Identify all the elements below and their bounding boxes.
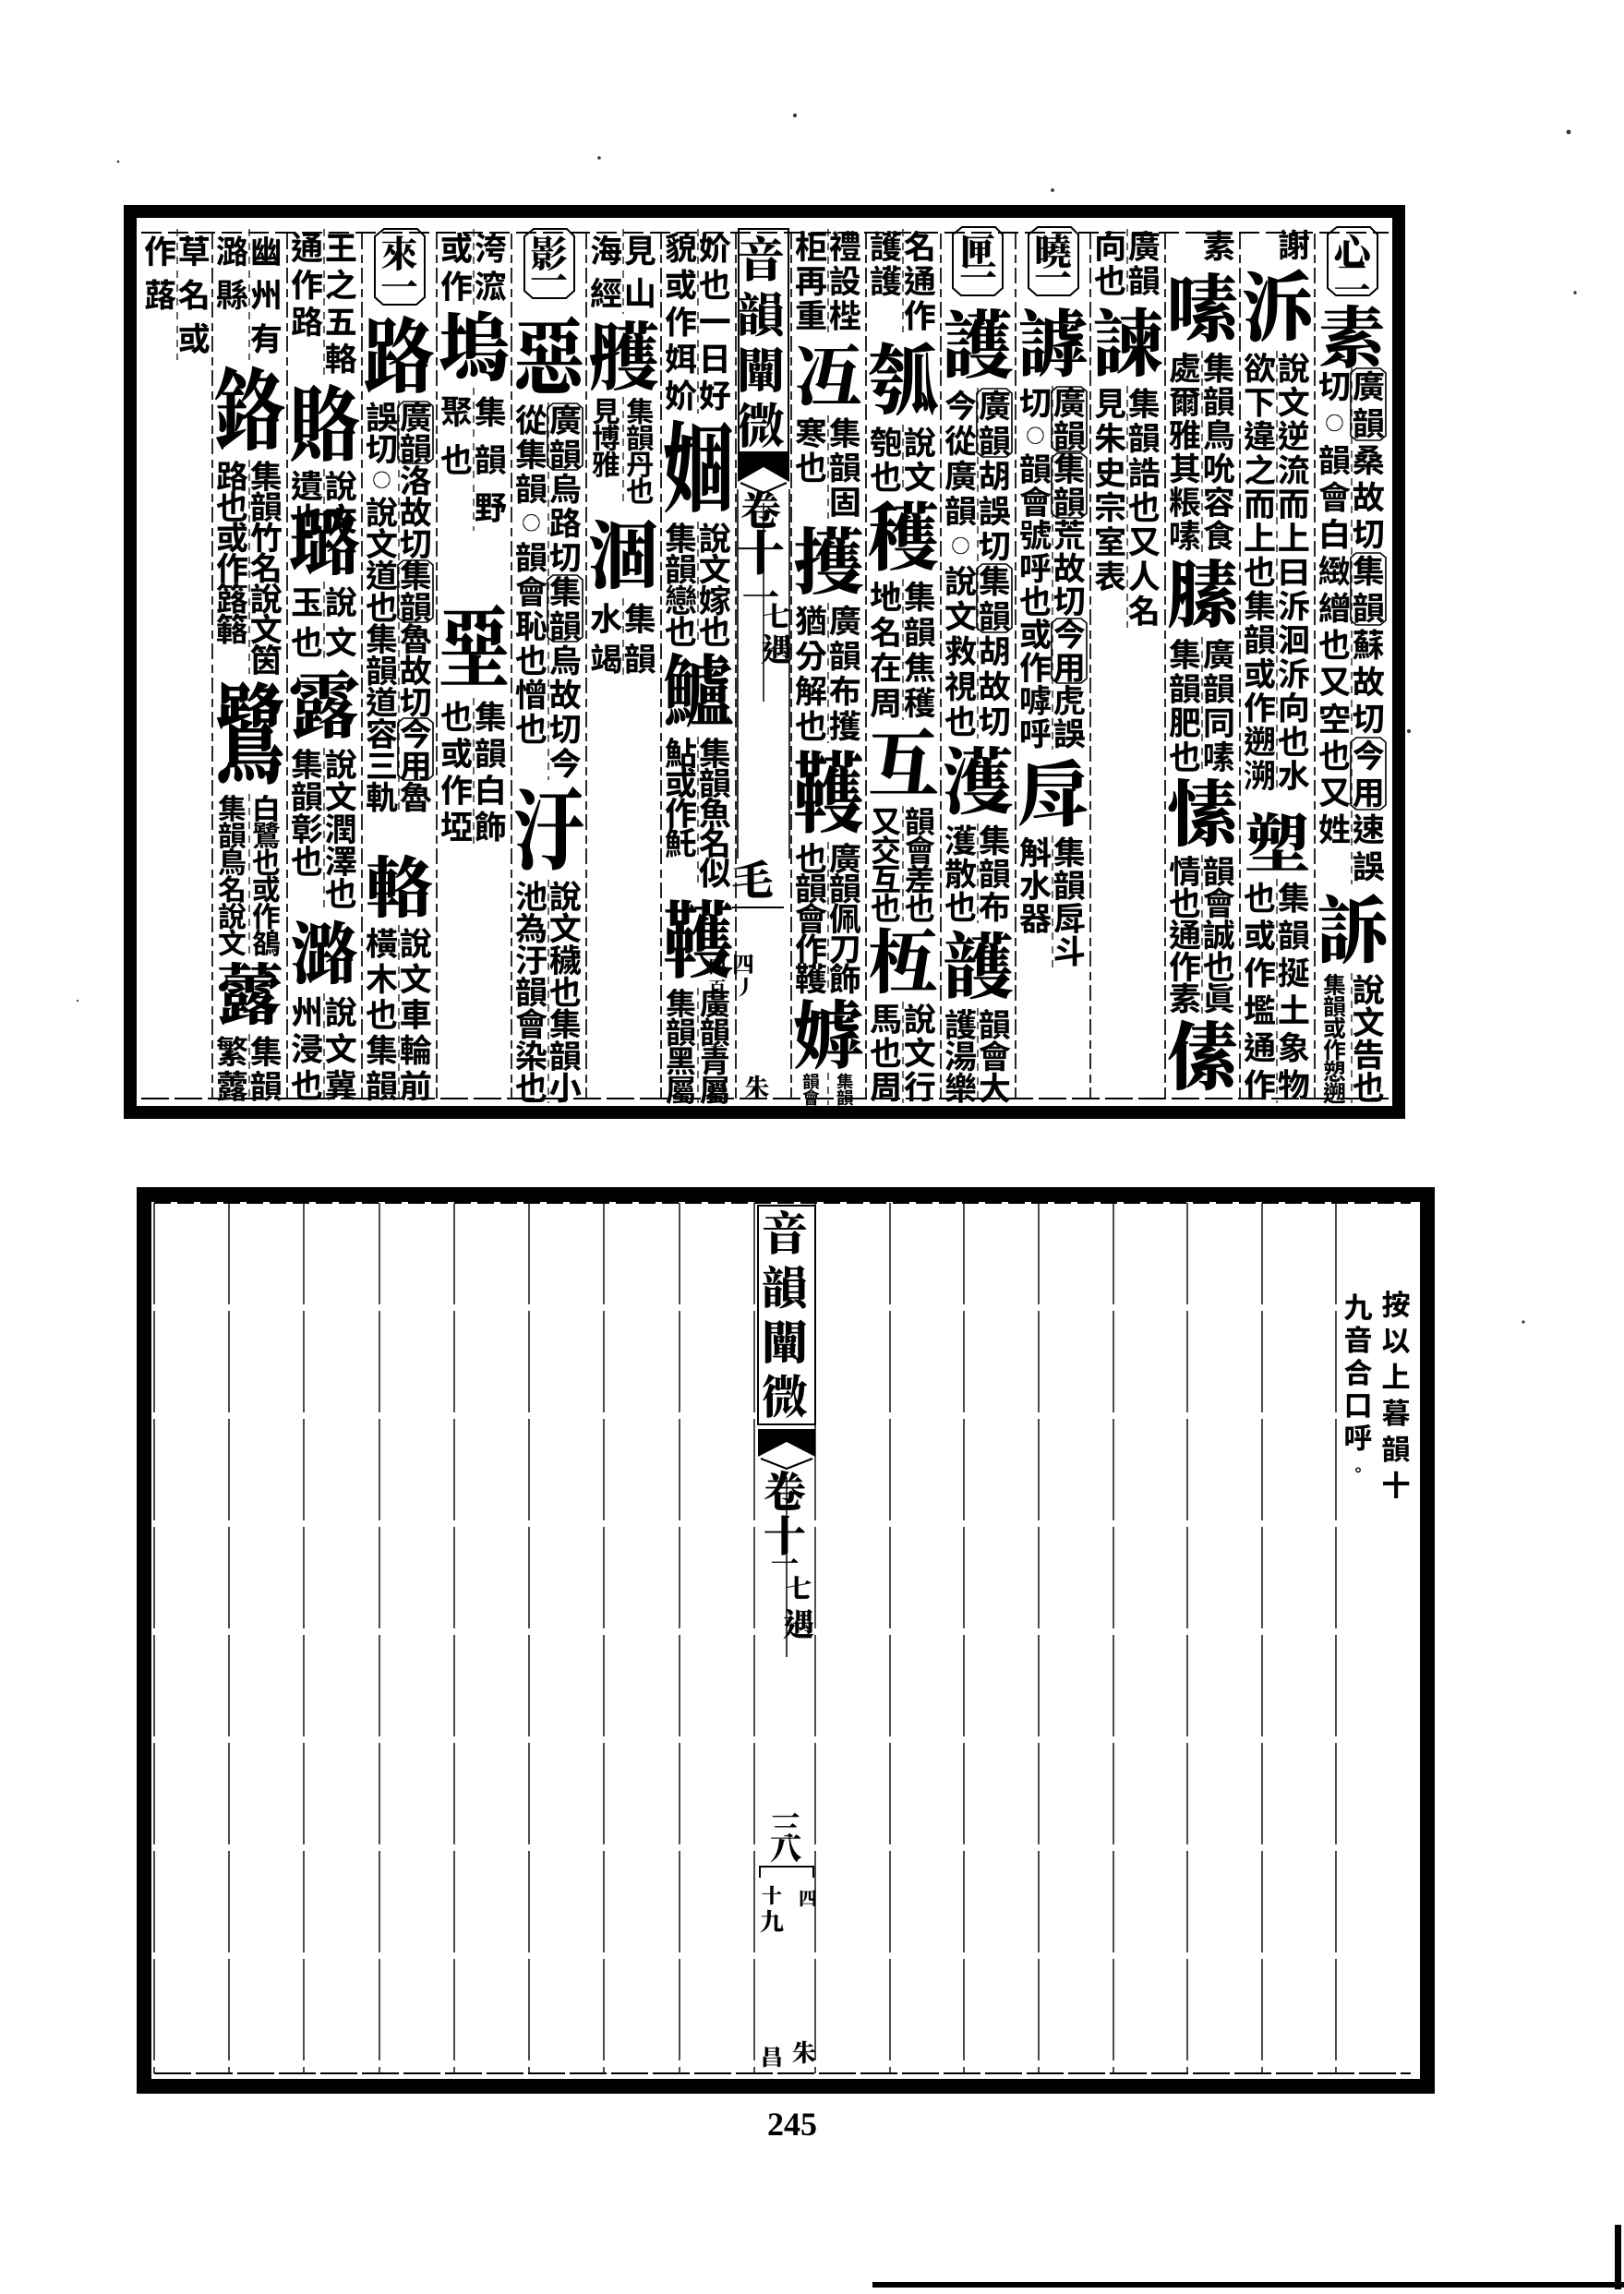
svg-text:245: 245 [767,2106,817,2143]
